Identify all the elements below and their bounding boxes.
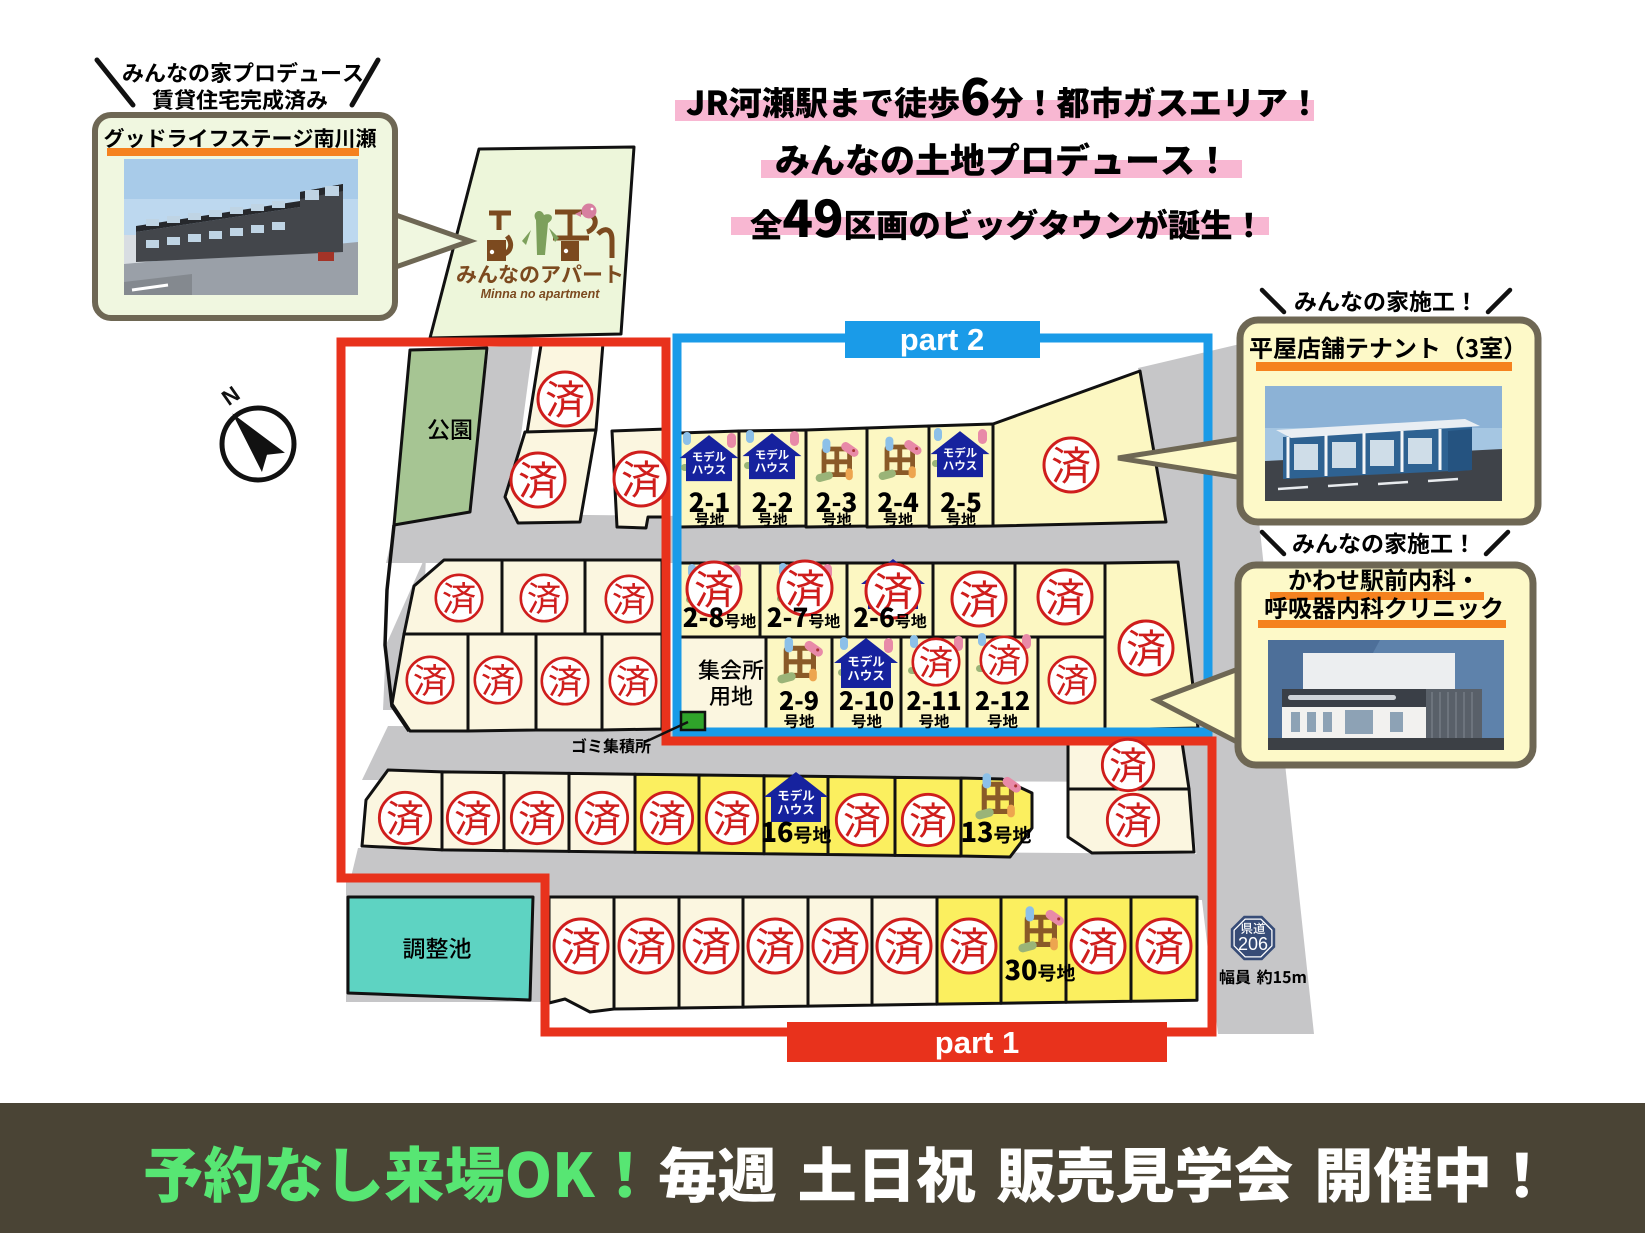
svg-text:Minna no apartment: Minna no apartment <box>481 287 601 301</box>
svg-text:part 2: part 2 <box>900 322 984 357</box>
svg-text:206: 206 <box>1238 934 1268 954</box>
svg-text:part 1: part 1 <box>935 1025 1019 1060</box>
